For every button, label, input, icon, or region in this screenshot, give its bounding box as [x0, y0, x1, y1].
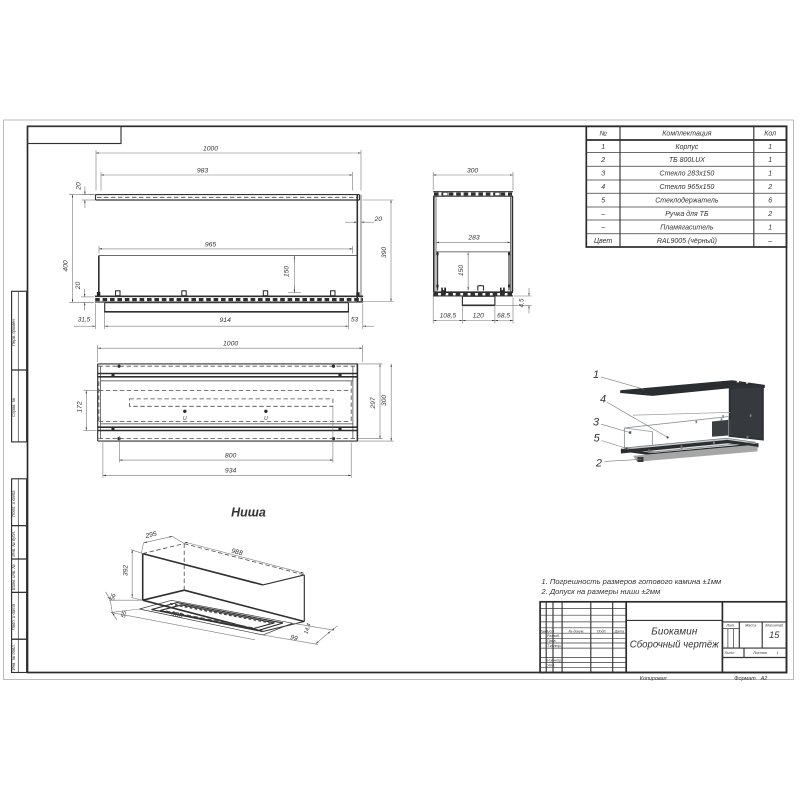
svg-text:Копировал: Копировал — [640, 676, 667, 682]
svg-text:Комплектация: Комплектация — [662, 131, 711, 138]
svg-text:20: 20 — [75, 282, 82, 291]
svg-text:53: 53 — [351, 316, 359, 323]
svg-text:Подп. и дата: Подп. и дата — [11, 490, 16, 517]
svg-text:2. Допуск на размеры ниши ±2мм: 2. Допуск на размеры ниши ±2мм — [540, 587, 661, 596]
svg-text:150: 150 — [284, 266, 291, 278]
svg-text:6: 6 — [768, 198, 772, 205]
svg-text:Лист: Лист — [724, 651, 735, 655]
svg-text:2: 2 — [595, 457, 602, 469]
svg-text:150: 150 — [458, 265, 465, 277]
svg-text:1: 1 — [601, 144, 605, 151]
svg-text:4: 4 — [600, 394, 606, 406]
svg-text:Подп. и дата: Подп. и дата — [11, 603, 16, 630]
svg-text:300: 300 — [467, 167, 479, 174]
svg-text:Пров.: Пров. — [547, 639, 556, 643]
svg-text:1: 1 — [776, 651, 778, 655]
svg-text:Сборочный чертёж: Сборочный чертёж — [630, 639, 720, 650]
svg-text:297: 297 — [370, 397, 377, 410]
svg-text:3: 3 — [601, 171, 605, 178]
svg-text:1: 1 — [768, 224, 772, 231]
svg-text:914: 914 — [220, 317, 232, 324]
svg-text:Подп.: Подп. — [597, 629, 607, 633]
svg-text:U: U — [264, 416, 268, 422]
svg-text:1: 1 — [593, 369, 599, 381]
svg-text:Справ. №: Справ. № — [11, 397, 16, 416]
svg-text:68,5: 68,5 — [497, 313, 510, 320]
svg-text:800: 800 — [225, 452, 237, 459]
svg-text:–: – — [767, 238, 772, 245]
svg-text:Лист: Лист — [544, 629, 554, 633]
svg-text:Перв. примен.: Перв. примен. — [11, 318, 16, 346]
svg-text:4: 4 — [601, 184, 605, 191]
svg-text:2: 2 — [767, 184, 772, 191]
svg-text:Инв. № подл.: Инв. № подл. — [11, 644, 16, 670]
svg-text:172: 172 — [76, 401, 83, 413]
svg-text:283: 283 — [467, 235, 480, 242]
svg-text:2: 2 — [600, 157, 605, 164]
svg-text:1: 1 — [768, 144, 772, 151]
svg-text:5: 5 — [594, 433, 601, 445]
svg-text:Кол: Кол — [764, 131, 776, 138]
svg-text:1: 1 — [768, 171, 772, 178]
svg-text:ТБ 800LUX: ТБ 800LUX — [669, 157, 705, 164]
svg-text:Разраб.: Разраб. — [547, 634, 560, 638]
svg-text:Листов: Листов — [752, 651, 767, 655]
svg-text:31,5: 31,5 — [78, 316, 91, 323]
svg-text:№ докум.: № докум. — [568, 629, 584, 633]
svg-text:20: 20 — [75, 182, 82, 191]
svg-text:4,5: 4,5 — [519, 298, 526, 307]
svg-text:Пламягаситель: Пламягаситель — [660, 224, 714, 231]
svg-text:–: – — [600, 224, 605, 231]
svg-text:Инв. № дубл.: Инв. № дубл. — [11, 531, 16, 557]
svg-text:Биокамин: Биокамин — [651, 626, 698, 637]
svg-text:Масштаб: Масштаб — [765, 623, 784, 627]
svg-text:1: 1 — [768, 157, 772, 164]
svg-text:Н.контр.: Н.контр. — [547, 659, 562, 663]
svg-text:15: 15 — [769, 630, 780, 640]
svg-text:108,5: 108,5 — [440, 313, 457, 320]
svg-text:1000: 1000 — [203, 146, 218, 153]
svg-text:1. Погрешность размеров готово: 1. Погрешность размеров готового камина … — [541, 577, 722, 586]
svg-text:Цвет: Цвет — [594, 238, 612, 245]
svg-text:3: 3 — [593, 417, 600, 429]
svg-text:5: 5 — [601, 198, 605, 205]
svg-text:А2: А2 — [760, 676, 768, 682]
svg-text:400: 400 — [63, 260, 70, 272]
svg-text:Взам. инв. №: Взам. инв. № — [11, 564, 16, 590]
svg-text:Стекло 965х150: Стекло 965х150 — [660, 184, 715, 191]
svg-text:2: 2 — [767, 211, 772, 218]
svg-text:Корпус: Корпус — [676, 144, 699, 151]
svg-text:Дата: Дата — [614, 629, 624, 633]
svg-text:Стеклодержатель: Стеклодержатель — [655, 197, 719, 205]
svg-text:Стекло 283х150: Стекло 283х150 — [660, 171, 715, 178]
svg-text:Ниша: Ниша — [231, 505, 266, 519]
svg-text:965: 965 — [205, 241, 217, 248]
svg-text:120: 120 — [473, 313, 485, 320]
svg-text:983: 983 — [197, 167, 209, 174]
svg-text:20: 20 — [374, 216, 383, 223]
svg-text:№: № — [599, 131, 607, 138]
svg-text:390: 390 — [381, 247, 388, 259]
svg-text:1000: 1000 — [223, 341, 238, 348]
svg-text:934: 934 — [225, 468, 237, 475]
svg-text:Масса: Масса — [745, 623, 756, 627]
svg-text:392: 392 — [122, 565, 129, 577]
svg-text:Утв.: Утв. — [547, 664, 555, 668]
svg-text:U: U — [183, 416, 187, 422]
svg-text:Лит.: Лит. — [725, 623, 735, 627]
svg-text:–: – — [600, 211, 605, 218]
svg-text:Формат: Формат — [734, 676, 756, 682]
svg-text:300: 300 — [381, 395, 388, 407]
svg-text:Т.контр.: Т.контр. — [547, 644, 562, 648]
svg-text:RAL9005 (чёрный): RAL9005 (чёрный) — [657, 237, 717, 245]
svg-text:Ручка для ТБ: Ручка для ТБ — [665, 210, 709, 218]
